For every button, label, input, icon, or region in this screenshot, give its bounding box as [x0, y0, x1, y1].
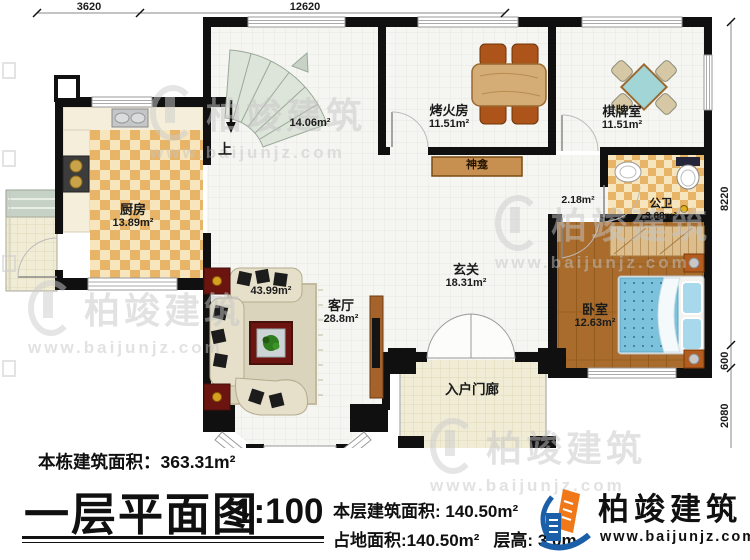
plan-title: 一层平面图: [24, 478, 259, 543]
passage-area-label: 2.18m²: [543, 195, 613, 207]
floorplan-page: { "dimensions": { "top_left": "3620", "t…: [0, 0, 750, 560]
kitchen-sink: [112, 109, 148, 127]
living-partial-area-label: 43.99m²: [236, 285, 306, 297]
room-label-chess-room: 棋牌室11.51m²: [582, 105, 662, 131]
brand-logo-icon: [533, 485, 595, 553]
floor-area: 本层建筑面积: 140.50m²: [333, 497, 518, 522]
bathroom-sink: [615, 162, 641, 182]
title-underline-thin: [22, 542, 324, 543]
room-label-living-room: 客厅28.8m²: [301, 299, 381, 325]
wardrobe: [610, 226, 704, 256]
window-kitchen-top: [92, 97, 152, 107]
dim-12620: 12620: [272, 1, 338, 13]
room-label-bedroom: 卧室12.63m²: [555, 303, 635, 329]
dim-600: 600: [719, 346, 731, 376]
window-top-chess: [582, 17, 682, 27]
side-table-bottom: [204, 384, 230, 410]
room-label-kitchen: 厨房13.89m²: [93, 203, 173, 229]
room-label-bathroom: 公卫3.68m²: [626, 198, 696, 222]
edge-logo-mark: [2, 360, 16, 377]
edge-logo-mark: [2, 62, 16, 79]
nightstand-bottom: [684, 350, 704, 368]
edge-logo-mark: [2, 255, 16, 272]
window-kitchen-bottom: [88, 278, 177, 290]
brand-website: www.baijunjz.com: [600, 529, 750, 545]
stair-area-label: 14.06m²: [275, 117, 345, 129]
plan-scale: 1:100: [234, 492, 324, 532]
kitchen-stove: [63, 156, 89, 192]
coffee-table: [250, 322, 292, 364]
window-top-fire: [418, 17, 518, 27]
nightstand-top: [684, 254, 704, 272]
brand-name: 柏竣建筑: [598, 484, 742, 529]
bay-window-center: [264, 446, 336, 448]
window-east: [704, 55, 712, 110]
floors-layer: [6, 21, 704, 448]
window-bedroom: [588, 368, 676, 378]
dim-2080: 2080: [719, 396, 731, 436]
bathroom-toilet: [676, 157, 700, 189]
room-label-entry-porch: 入户门廊: [412, 383, 532, 398]
window-top-stair: [248, 17, 345, 27]
side-porch: [6, 190, 57, 291]
room-label-fire-room: 烤火房11.51m²: [409, 104, 489, 130]
dim-3620: 3620: [58, 1, 120, 13]
dim-8220: 8220: [719, 176, 731, 222]
total-building-area: 本栋建筑面积：363.31m²: [38, 449, 235, 474]
side-table-top: [204, 268, 230, 294]
stair-up-label: 上: [214, 142, 236, 157]
title-underline: [22, 536, 324, 539]
room-label-foyer: 玄关18.31m²: [426, 263, 506, 289]
edge-logo-mark: [2, 150, 16, 167]
shrine-label: 神龛: [432, 159, 522, 171]
ground-area: 占地面积:140.50m²: [333, 531, 479, 550]
